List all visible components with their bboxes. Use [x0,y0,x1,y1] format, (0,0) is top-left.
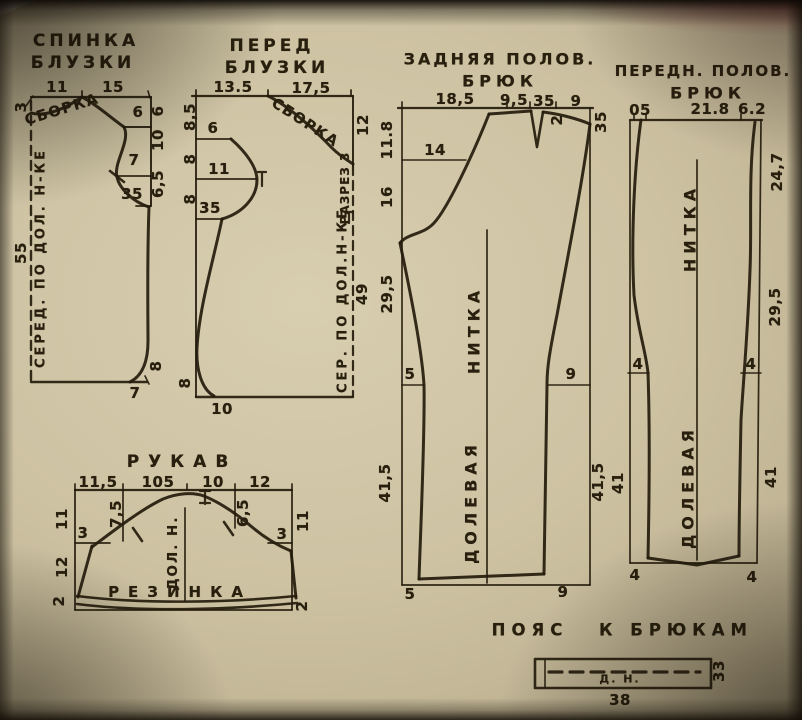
side-seam [130,207,149,382]
measure-bt-side-top: 35 [592,111,610,133]
belt-title-word1: ПОЯС [492,621,569,640]
measure-bt-left-3: 29,5 [378,274,396,313]
measure-bb-neck-drop: 3 [12,102,30,113]
measure-bb-box-7: 7 [129,151,140,169]
side-seam [633,120,649,558]
measure-ft-top-3: 6.2 [738,100,766,118]
measure-ft-top-2: 21.8 [690,100,729,118]
measure-bb-box-6: 6 [133,103,144,121]
measure-ft-hip-left: 4 [633,355,644,373]
measure-fb-box-11: 11 [208,160,230,178]
pattern-linework [0,0,802,720]
back-blouse-title-line2: БЛУЗКИ [31,53,135,73]
ft-grain-label-2: НИТКА [681,184,700,272]
side-seam [197,219,222,396]
measure-bt-left-2: 16 [378,186,396,208]
measure-bt-top-4: 9 [571,92,582,110]
inseam [400,243,424,579]
measure-fb-top-1: 13.5 [213,78,252,96]
measure-fb-left-1: 8,5 [181,103,199,131]
dart [531,111,543,147]
measure-sl-cap-right: 3 [277,525,288,543]
measure-sl-left-1: 11 [53,508,71,530]
measure-sl-top-3: 10 [202,473,224,491]
measure-ft-left-length: 41 [609,472,627,494]
measure-sl-left-2: 12 [53,556,71,578]
bt-grain-label-1: ДОЛЕВАЯ [462,440,481,564]
sl-elastic-label: РЕЗИНКА [108,583,252,601]
measure-bt-14: 14 [424,141,446,159]
measure-bb-right-1: 6 [149,106,167,117]
inseam [739,122,755,556]
measure-bb-top-1: 11 [46,78,68,96]
measure-fb-left-4: 8 [176,378,194,389]
sleeve-title: РУКАВ [127,452,238,472]
measure-bb-right-2: 10 [149,129,167,151]
measure-fb-top-2: 17,5 [291,79,330,97]
measure-bb-length: 55 [12,242,30,264]
measure-sl-top-1: 11,5 [78,473,117,491]
measure-ft-top-1: 05 [629,101,651,119]
measure-belt-width: 33 [710,660,728,682]
measure-sl-right-1: 11 [294,510,312,532]
measure-fb-bottom: 10 [211,400,233,418]
front-blouse-title-line1: ПЕРЕД [229,36,314,56]
measure-bt-left-1: 11.8 [378,120,396,159]
measure-bb-box-35: 35 [121,185,143,203]
back-trousers-title-line2: БРЮК [462,72,538,91]
belt-grain-label: Д. Н. [599,673,640,686]
measure-fb-box-35: 35 [199,199,221,217]
measure-ft-right-2: 29,5 [766,287,784,326]
right-edge [757,120,761,563]
fb-fold-line-label: СЕР. ПО ДОЛ.Н-КЕ [336,207,351,393]
measure-bt-dart: 2 [548,115,566,126]
measure-sl-top-2: 105 [142,473,175,491]
sl-grain-label: ДОЛ. Н. [165,516,181,591]
waist-seam [489,111,531,114]
measure-sl-right-2: 2 [293,601,311,612]
measure-bt-top-1: 18,5 [435,90,474,108]
measure-bb-bottom: 7 [130,384,141,402]
belt-title-word2: К БРЮКАМ [599,621,753,640]
measure-fb-box-6: 6 [208,119,219,137]
measure-bt-hip-left: 5 [405,365,416,383]
measure-bb-right-3: 6,5 [149,170,167,198]
measure-bt-left-4: 41,5 [376,463,394,502]
measure-fb-left-3: 8 [181,194,199,205]
measure-fb-length: 49 [353,283,371,305]
bb-fold-line-label: СЕРЕД. ПО ДОЛ. Н-КЕ [34,148,49,368]
measure-ft-bottom-2: 4 [747,568,758,586]
measure-sl-inner-right: 6,5 [234,499,252,527]
back-trousers-title-line1: ЗАДНЯЯ ПОЛОВ. [404,50,597,69]
back-blouse-title-line1: СПИНКА [33,31,139,51]
notch-mark [224,522,233,535]
measure-fb-left-2: 8 [181,154,199,165]
measure-bt-top-3: 35 [533,92,555,110]
side-seam [544,124,590,574]
measure-bt-right-length: 41,5 [589,462,607,501]
measure-sl-left-3: 2 [50,596,68,607]
measure-ft-hip-right: 4 [746,355,757,373]
measure-belt-length: 38 [609,691,631,709]
measure-bt-top-2: 9,5 [500,91,528,109]
back-trousers-outline [398,102,593,585]
measure-bt-bottom-1: 5 [405,585,416,603]
underarm-seam-left [78,546,92,597]
measure-ft-right-length: 41 [762,466,780,488]
notch-mark [133,528,142,541]
measure-sl-cap-left: 3 [78,524,89,542]
measure-bb-top-2: 15 [102,78,124,96]
ft-grain-label-1: ДОЛЕВАЯ [679,425,698,549]
measure-sl-top-4: 12 [249,473,271,491]
sewing-pattern-sheet: СПИНКА БЛУЗКИ 11 15 3 СБОРКА 6 7 35 6 10… [0,0,802,720]
measure-ft-bottom-1: 4 [630,566,641,584]
measure-sl-inner-left: 7,5 [107,500,125,528]
bt-grain-label-2: НИТКА [465,286,484,374]
measure-bt-hip-right: 9 [566,365,577,383]
measure-bt-bottom-2: 9 [558,583,569,601]
measure-ft-right-1: 24,7 [768,152,786,191]
center-back-crotch-seam [400,114,489,243]
elastic-casing-line [77,603,297,609]
measure-fb-neck-depth: 12 [354,114,372,136]
measure-bb-right-4: 8 [147,361,165,372]
notch-mark [258,172,266,186]
front-blouse-title-line2: БЛУЗКИ [225,58,329,78]
front-trousers-title-line1: ПЕРЕДН. ПОЛОВ. [615,62,792,80]
hem [419,574,544,579]
